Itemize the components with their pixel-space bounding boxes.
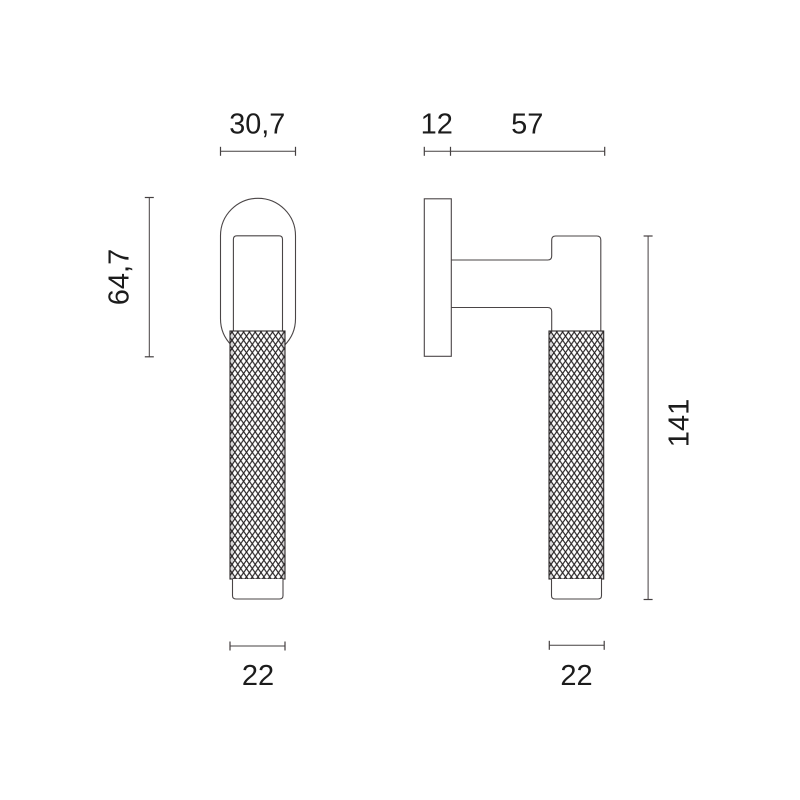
svg-text:141: 141	[664, 399, 696, 447]
svg-text:57: 57	[511, 108, 543, 140]
svg-text:22: 22	[560, 660, 592, 692]
svg-text:22: 22	[242, 660, 274, 692]
svg-text:12: 12	[421, 108, 453, 140]
svg-text:30,7: 30,7	[229, 108, 285, 140]
svg-text:64,7: 64,7	[104, 249, 136, 305]
